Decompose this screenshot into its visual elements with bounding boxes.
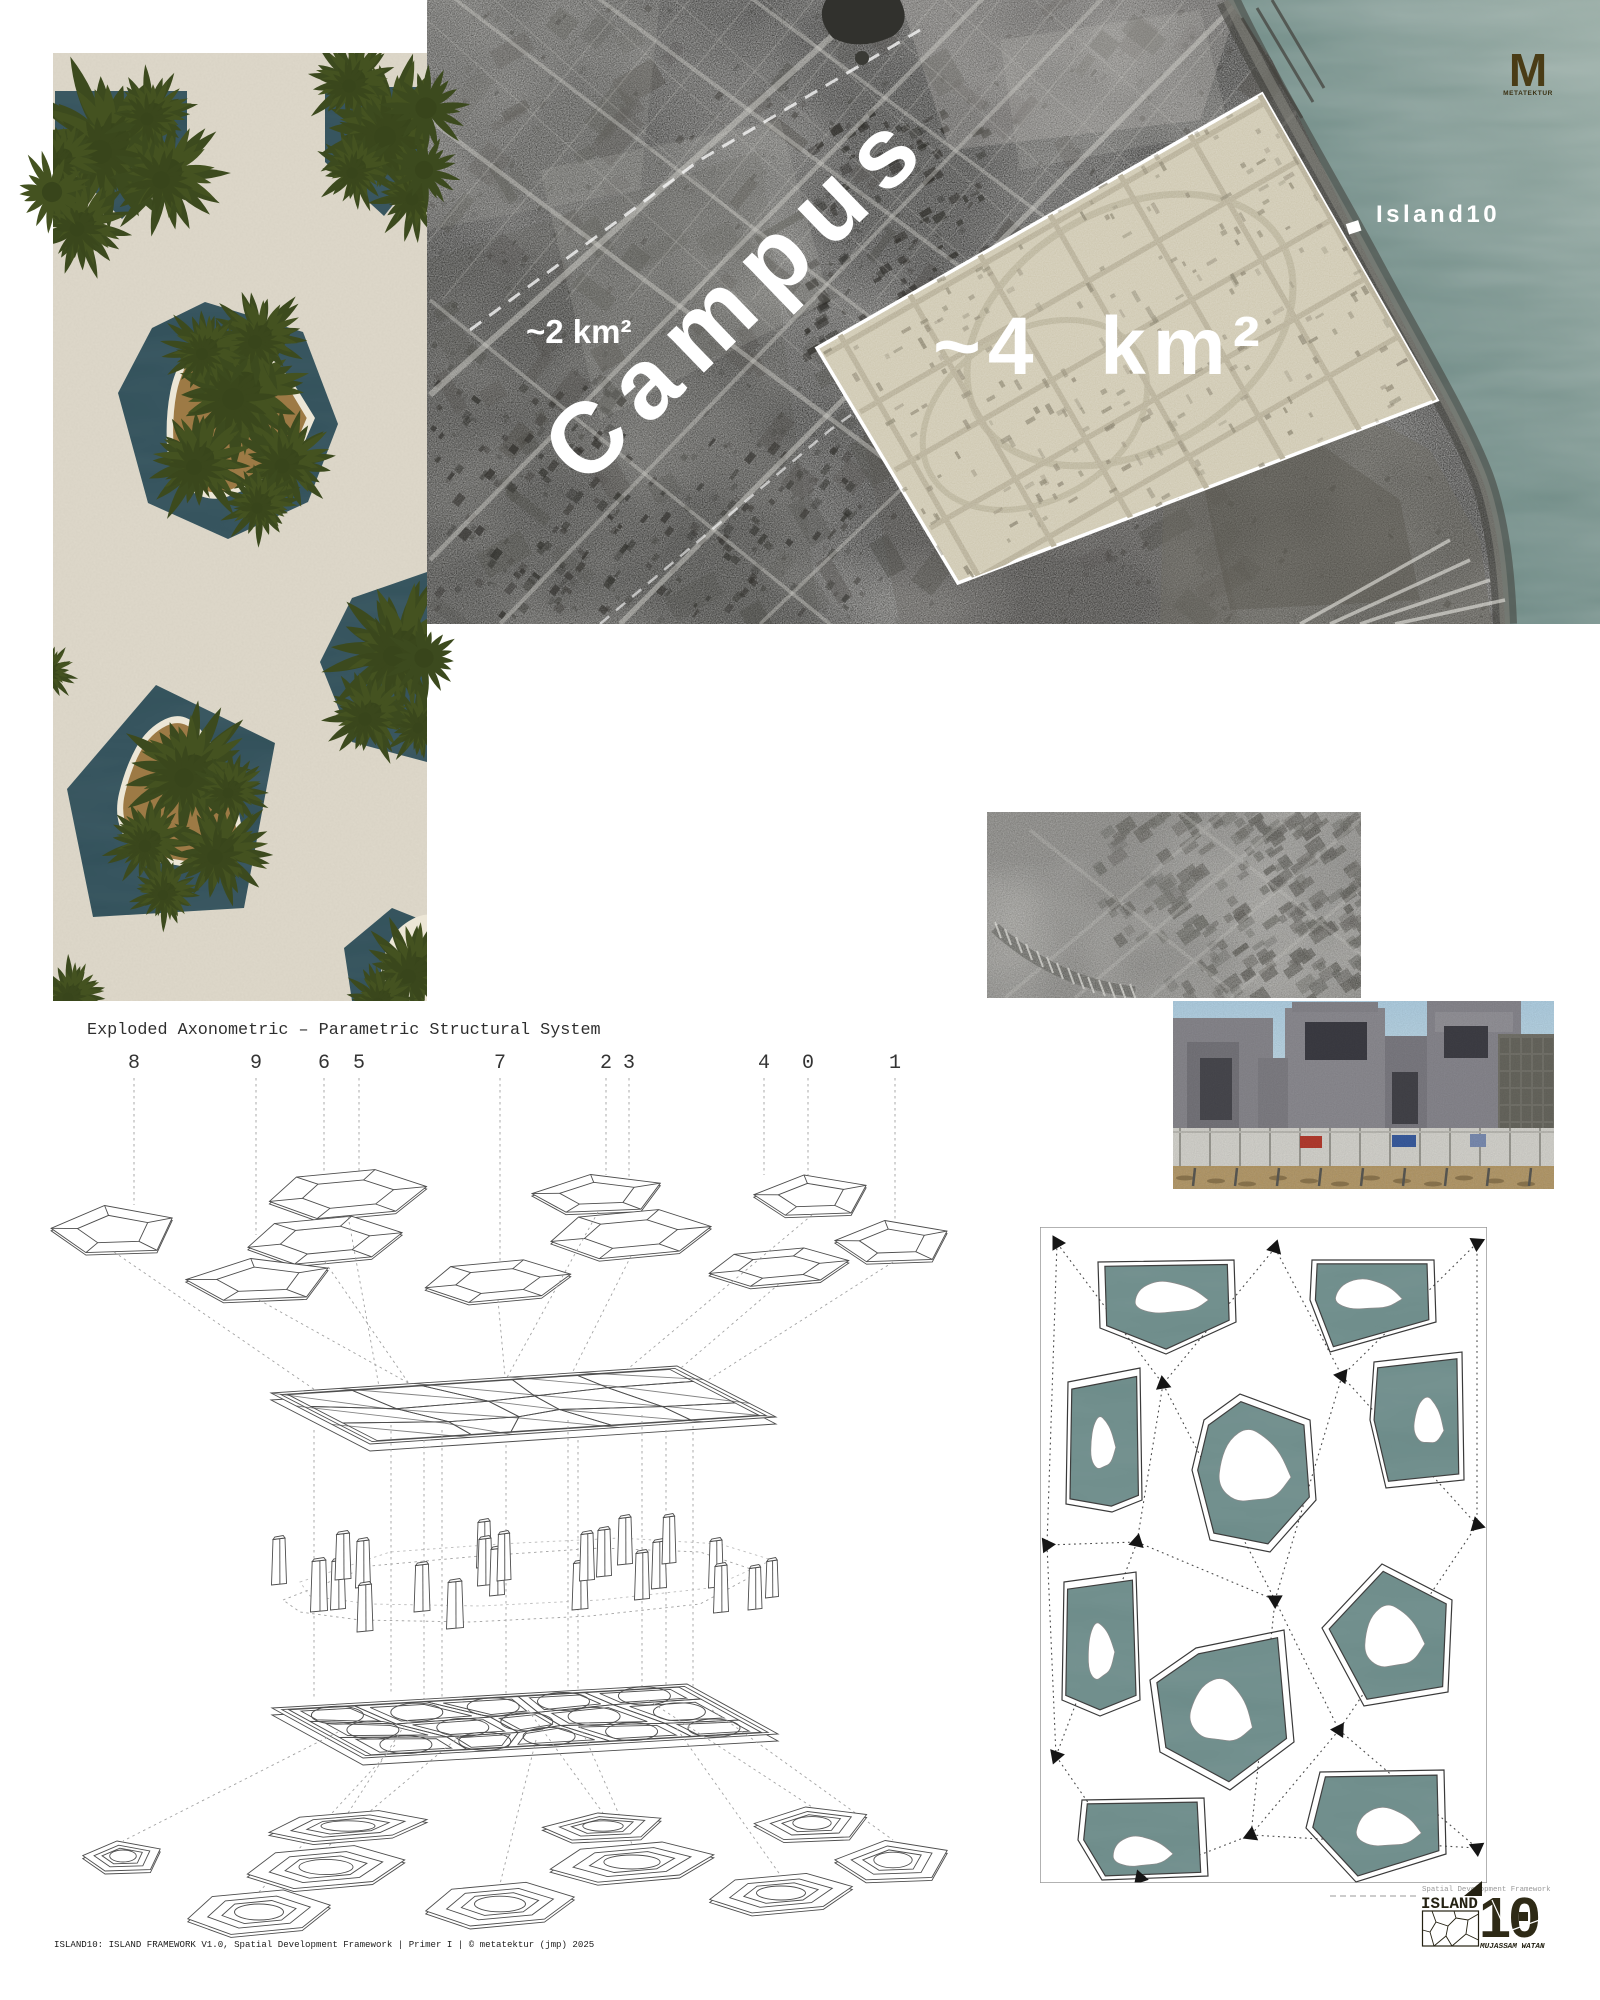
svg-text:8: 8 (128, 1052, 140, 1075)
svg-text:ISLAND10: ISLAND FRAMEWORK V1.: ISLAND10: ISLAND FRAMEWORK V1.0, Spatial… (54, 1939, 594, 1950)
svg-text:5: 5 (353, 1052, 365, 1075)
svg-text:METATEKTUR: METATEKTUR (1503, 90, 1553, 97)
svg-text:6: 6 (318, 1052, 330, 1075)
svg-text:7: 7 (494, 1052, 506, 1075)
svg-text:10: 10 (1479, 1886, 1539, 1950)
svg-text:0: 0 (802, 1052, 814, 1075)
svg-text:1: 1 (889, 1052, 901, 1075)
svg-text:Island10: Island10 (1376, 201, 1500, 228)
svg-text:MUJASSAM WATAN: MUJASSAM WATAN (1479, 1943, 1545, 1951)
svg-text:~2 km²: ~2 km² (526, 313, 631, 350)
svg-text:M: M (1509, 44, 1547, 96)
svg-text:ISLAND: ISLAND (1421, 1895, 1478, 1913)
svg-text:4: 4 (758, 1052, 770, 1075)
svg-text:2: 2 (600, 1052, 612, 1075)
svg-text:Exploded Axonometric – Paramet: Exploded Axonometric – Parametric Struct… (87, 1021, 601, 1040)
svg-text:9: 9 (250, 1052, 262, 1075)
svg-text:3: 3 (623, 1052, 635, 1075)
svg-text:~4 km²: ~4 km² (933, 301, 1267, 392)
